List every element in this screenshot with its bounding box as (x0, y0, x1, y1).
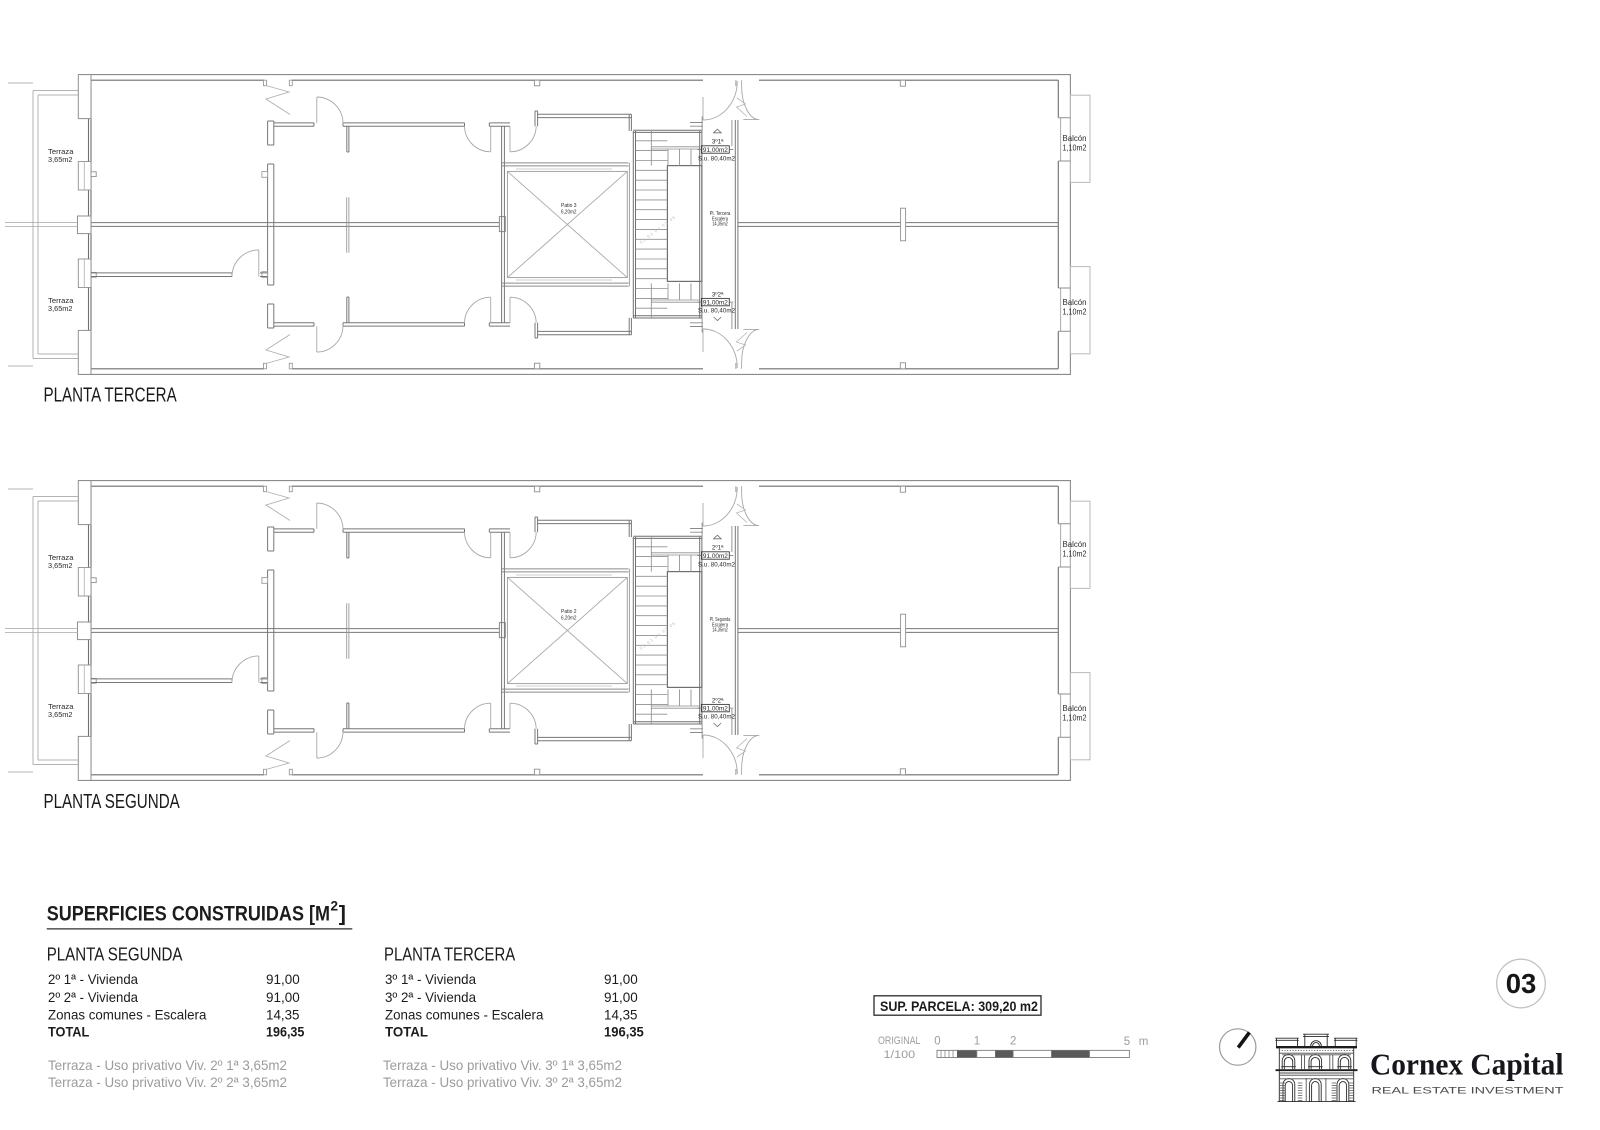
svg-text:196,35: 196,35 (604, 1024, 644, 1040)
svg-text:03: 03 (1506, 968, 1537, 999)
svg-text:PLANTA SEGUNDA: PLANTA SEGUNDA (44, 790, 181, 813)
svg-text:91,00m2: 91,00m2 (703, 707, 729, 713)
svg-text:Balcón: Balcón (1063, 704, 1087, 713)
svg-text:14,35m2: 14,35m2 (712, 222, 728, 228)
svg-text:3º1ª: 3º1ª (712, 139, 724, 146)
svg-text:S.u. 80,40m2: S.u. 80,40m2 (698, 562, 736, 568)
svg-text:m: m (1139, 1036, 1149, 1048)
svg-text:5: 5 (1124, 1036, 1130, 1048)
svg-text:ORIGINAL: ORIGINAL (878, 1035, 921, 1047)
svg-text:S.u. 80,40m2: S.u. 80,40m2 (698, 156, 736, 162)
svg-text:Zonas comunes - Escalera: Zonas comunes - Escalera (48, 1006, 207, 1022)
svg-text:2: 2 (331, 899, 339, 914)
svg-text:196,35: 196,35 (266, 1024, 305, 1040)
svg-text:Patio 2: Patio 2 (561, 609, 577, 615)
svg-text:6,20m2: 6,20m2 (561, 615, 577, 621)
svg-text:Terraza - Uso privativo Viv. 2: Terraza - Uso privativo Viv. 2º 1ª 3,65m… (48, 1057, 287, 1073)
svg-text:]: ] (339, 901, 346, 925)
svg-text:2º1ª: 2º1ª (712, 545, 724, 552)
svg-text:14,35: 14,35 (604, 1006, 638, 1022)
svg-text:Balcón: Balcón (1063, 298, 1087, 307)
svg-text:3,65m2: 3,65m2 (48, 561, 73, 570)
svg-text:91,00m2: 91,00m2 (703, 554, 729, 560)
svg-text:TOTAL: TOTAL (385, 1024, 428, 1040)
svg-text:REAL ESTATE INVESTMENT: REAL ESTATE INVESTMENT (1372, 1086, 1564, 1097)
svg-text:Cornex Capital: Cornex Capital (1370, 1048, 1564, 1082)
svg-text:Patio 3: Patio 3 (561, 203, 577, 209)
svg-text:PLANTA TERCERA: PLANTA TERCERA (44, 384, 177, 407)
svg-text:1,10m2: 1,10m2 (1063, 713, 1087, 722)
svg-text:1,10m2: 1,10m2 (1063, 307, 1087, 316)
svg-text:91,00: 91,00 (604, 989, 638, 1005)
svg-text:91,00: 91,00 (266, 971, 300, 987)
svg-text:3,65m2: 3,65m2 (48, 155, 73, 164)
svg-text:2º 1ª - Vivienda: 2º 1ª - Vivienda (48, 971, 138, 987)
svg-text:PLANTA SEGUNDA: PLANTA SEGUNDA (47, 943, 183, 964)
svg-text:14,35m2: 14,35m2 (712, 628, 728, 634)
svg-text:91,00: 91,00 (604, 971, 638, 987)
svg-text:Terraza - Uso privativo Viv. 3: Terraza - Uso privativo Viv. 3º 2ª 3,65m… (383, 1074, 622, 1090)
svg-text:91,00m2: 91,00m2 (703, 301, 729, 307)
svg-text:3º2ª: 3º2ª (712, 291, 724, 298)
svg-text:Zonas comunes - Escalera: Zonas comunes - Escalera (385, 1006, 544, 1022)
svg-text:2º 2ª - Vivienda: 2º 2ª - Vivienda (48, 989, 138, 1005)
svg-text:14,35: 14,35 (266, 1006, 300, 1022)
svg-text:3,65m2: 3,65m2 (48, 304, 73, 313)
svg-text:Terraza - Uso privativo Viv. 3: Terraza - Uso privativo Viv. 3º 1ª 3,65m… (383, 1057, 622, 1073)
svg-text:3,65m2: 3,65m2 (48, 710, 73, 719)
svg-text:Terraza - Uso privativo Viv. 2: Terraza - Uso privativo Viv. 2º 2ª 3,65m… (48, 1074, 287, 1090)
svg-text:1: 1 (974, 1036, 980, 1048)
svg-text:1/100: 1/100 (884, 1049, 916, 1061)
svg-text:91,00: 91,00 (266, 989, 300, 1005)
svg-text:S.u. 80,40m2: S.u. 80,40m2 (698, 308, 736, 314)
svg-text:1,10m2: 1,10m2 (1063, 143, 1087, 152)
svg-text:3º 2ª - Vivienda: 3º 2ª - Vivienda (385, 989, 476, 1005)
svg-text:91,00m2: 91,00m2 (703, 148, 729, 154)
svg-text:S.u. 80,40m2: S.u. 80,40m2 (698, 714, 736, 720)
svg-text:Balcón: Balcón (1063, 134, 1087, 143)
svg-text:0: 0 (934, 1036, 940, 1048)
svg-text:SUP. PARCELA: 309,20 m2: SUP. PARCELA: 309,20 m2 (880, 998, 1038, 1014)
svg-text:3º 1ª - Vivienda: 3º 1ª - Vivienda (385, 971, 476, 987)
svg-text:SUPERFICIES CONSTRUIDAS [M: SUPERFICIES CONSTRUIDAS [M (47, 901, 330, 925)
svg-text:6,20m2: 6,20m2 (561, 209, 577, 215)
svg-text:PLANTA TERCERA: PLANTA TERCERA (384, 943, 516, 964)
svg-text:1,10m2: 1,10m2 (1063, 549, 1087, 558)
svg-text:2º2ª: 2º2ª (712, 697, 724, 704)
svg-text:TOTAL: TOTAL (48, 1024, 90, 1040)
svg-text:2: 2 (1010, 1036, 1016, 1048)
svg-text:Balcón: Balcón (1063, 540, 1087, 549)
